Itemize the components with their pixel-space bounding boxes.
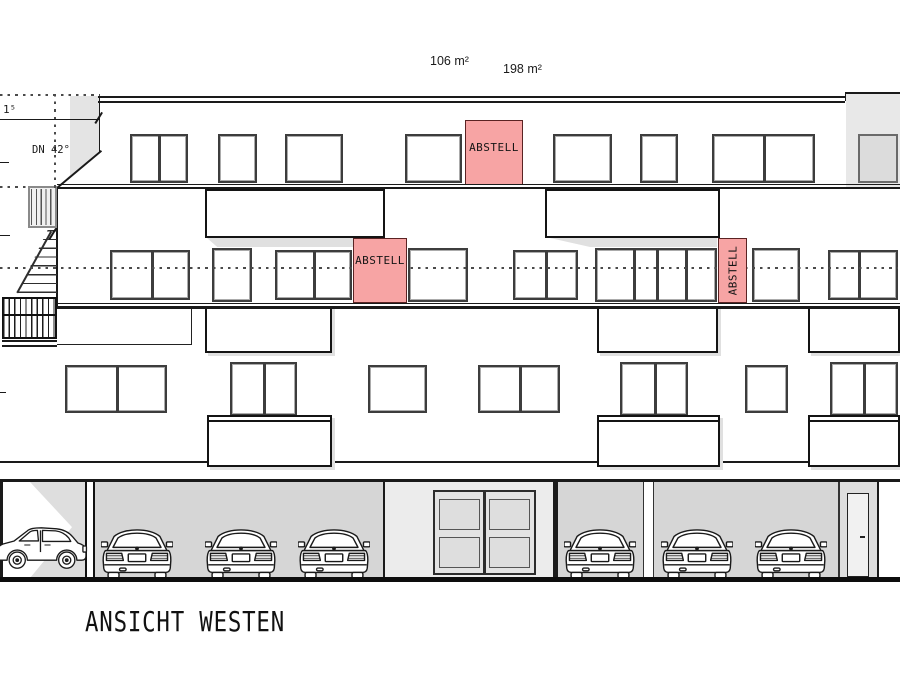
entrance-door <box>433 490 536 575</box>
floor-line-thick <box>57 187 900 190</box>
ground-french-door <box>230 362 297 416</box>
storage-label: ABSTELL <box>469 141 519 154</box>
balcony-parapet <box>207 415 332 467</box>
eave-dotted-line <box>0 186 28 188</box>
ground-window <box>65 365 167 413</box>
attic-window <box>712 134 815 183</box>
drawing-title: ANSICHT WESTEN <box>85 605 285 638</box>
roof-edge-line-thin <box>98 96 845 98</box>
ground-reference-line <box>0 461 900 463</box>
ridge-dotted-line <box>0 94 100 96</box>
storage-box-upper-right: ABSTELL <box>718 238 747 303</box>
balcony-parapet <box>597 306 718 353</box>
ground-window <box>368 365 427 413</box>
dimension-dash <box>0 235 10 236</box>
attic-corner-line <box>99 96 101 152</box>
storage-label: ABSTELL <box>355 254 405 267</box>
dimension-line <box>0 119 99 121</box>
garage-pillar <box>643 482 654 578</box>
upper-window <box>828 250 898 300</box>
car-side-icon <box>0 512 92 578</box>
ground-french-door <box>620 362 688 416</box>
loggia-box <box>205 189 385 238</box>
balcony-parapet <box>808 415 900 467</box>
door-panel <box>489 499 530 530</box>
roof-edge-line-thick <box>98 101 845 104</box>
upper-window <box>408 248 468 302</box>
area-label-small: 106 m² <box>430 54 469 68</box>
door-panel <box>489 537 530 568</box>
car-rear-icon <box>755 520 827 578</box>
ground-line-thick <box>0 577 900 582</box>
stair-steps <box>18 230 57 298</box>
storage-box-upper-mid: ABSTELL <box>353 238 407 303</box>
attic-window <box>285 134 343 183</box>
upper-window <box>513 250 578 300</box>
stair-landing-line <box>2 340 57 342</box>
door-panel <box>439 499 480 530</box>
garage-right-edge <box>877 482 879 578</box>
car-rear-icon <box>564 520 636 578</box>
side-entrance-door <box>847 493 869 577</box>
upper-sliding-door <box>595 248 717 302</box>
car-rear-icon <box>205 520 277 578</box>
gable-dotted-line <box>54 94 56 188</box>
ground-window <box>478 365 560 413</box>
storage-box-attic: ABSTELL <box>465 120 523 185</box>
ground-window <box>745 365 788 413</box>
car-rear-icon <box>298 520 370 578</box>
stair-window-hatch <box>31 189 54 225</box>
dimension-label: 1⁵ <box>3 103 16 116</box>
door-handle <box>860 536 865 538</box>
car-rear-icon <box>661 520 733 578</box>
attic-window <box>640 134 678 183</box>
balcony-parapet <box>808 306 900 353</box>
attic-window-shaded <box>858 134 898 183</box>
floor-line <box>57 303 900 304</box>
loggia-box <box>545 189 720 238</box>
door-panel <box>439 537 480 568</box>
car-rear-icon <box>101 520 173 578</box>
attic-window <box>130 134 188 183</box>
attic-window <box>405 134 462 183</box>
balcony-parapet <box>205 306 332 353</box>
roof-gable-shade <box>55 92 102 192</box>
stairwell-block <box>57 309 192 345</box>
stair-landing-line <box>2 345 57 347</box>
parapet-rail <box>209 420 330 422</box>
reference-dotted-line <box>0 267 898 269</box>
roof-pitch-label: DN 42° <box>32 144 70 156</box>
dimension-dash <box>0 392 6 393</box>
west-elevation-drawing: ABSTELL ABSTELL ABSTELL <box>0 0 900 673</box>
floor-line-thick <box>57 306 900 309</box>
stair-railing <box>2 297 57 339</box>
ground-french-door <box>830 362 898 416</box>
upper-window <box>752 248 800 302</box>
dimension-dash <box>0 162 9 163</box>
parapet-rail <box>810 420 898 422</box>
loggia-shadow <box>550 238 717 247</box>
upper-window <box>110 250 190 300</box>
area-label-large: 198 m² <box>503 62 542 76</box>
upper-door-window <box>212 248 252 302</box>
floor-line <box>57 184 900 185</box>
attic-window <box>218 134 257 183</box>
storage-label: ABSTELL <box>726 246 739 296</box>
railing-balusters <box>3 299 55 337</box>
upper-window <box>275 250 352 300</box>
parapet-rail <box>599 420 718 422</box>
door-center-stile <box>483 492 486 573</box>
attic-window <box>553 134 612 183</box>
railing-mid-rail <box>3 314 55 316</box>
loggia-shadow <box>207 238 353 247</box>
balcony-parapet <box>597 415 720 467</box>
stair-window <box>28 186 57 228</box>
